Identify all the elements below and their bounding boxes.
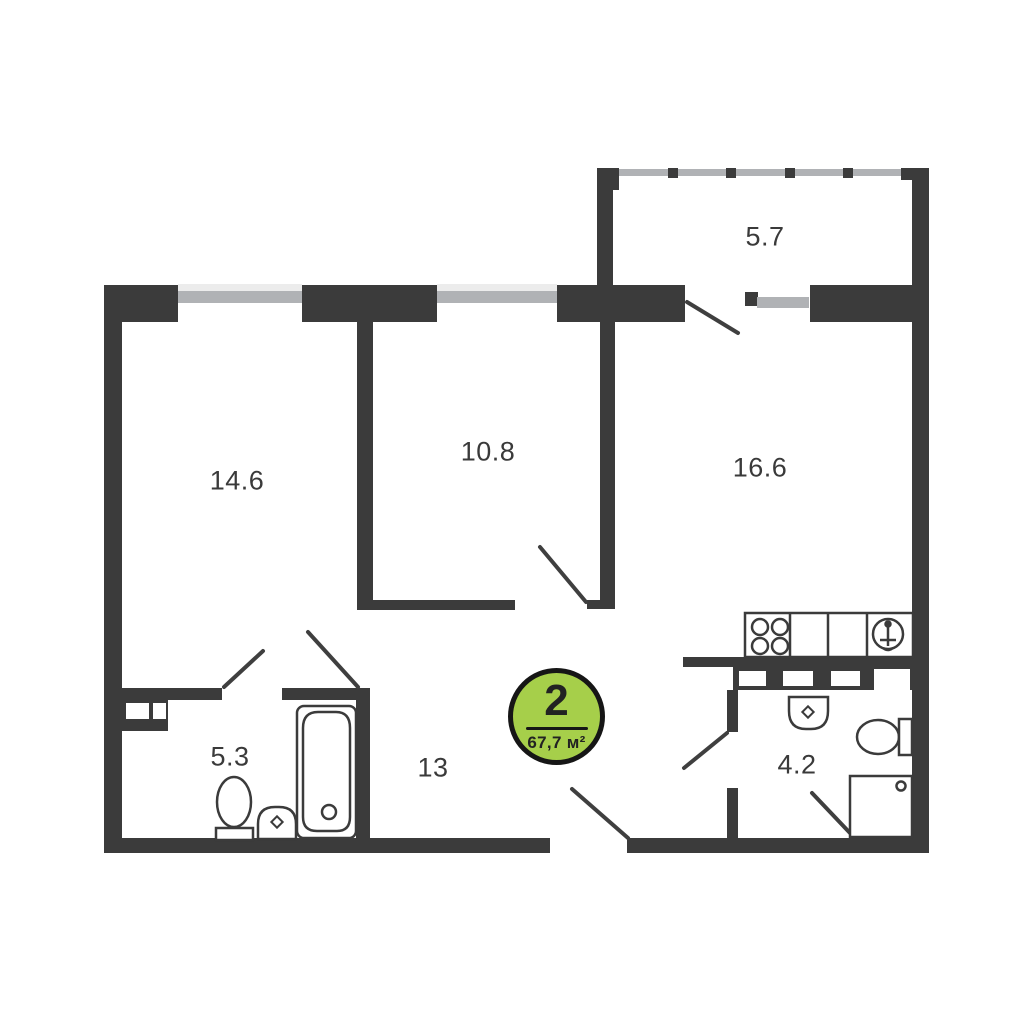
wc-left-wall-lower bbox=[727, 788, 738, 838]
outer-wall-left bbox=[104, 285, 122, 853]
apartment-type-badge: 2 67,7 м² bbox=[508, 668, 605, 765]
shower-icon bbox=[850, 776, 912, 837]
balcony-glazing bbox=[613, 169, 912, 176]
glazing-post bbox=[597, 168, 619, 190]
bathroom-top-wall-left bbox=[120, 688, 222, 700]
glazing-post bbox=[668, 168, 678, 178]
wc-door-leaf bbox=[684, 733, 727, 768]
glazing-post bbox=[785, 168, 795, 178]
top-wall-block-b bbox=[302, 285, 437, 322]
shower-door-leaf bbox=[812, 793, 850, 833]
balcony-door-stop bbox=[745, 292, 758, 306]
floor-plan: 14.6 10.8 16.6 5.7 5.3 13 4.2 2 67,7 м² bbox=[0, 0, 1024, 1024]
toilet-icon bbox=[216, 777, 253, 840]
room-label-balcony: 5.7 bbox=[745, 222, 784, 253]
window-bedroom-frame bbox=[437, 284, 557, 292]
duct-vent-opening bbox=[874, 669, 910, 690]
window-living-glass bbox=[178, 291, 302, 303]
bedroom-bottom-wall bbox=[357, 600, 515, 610]
kitchen-partition-wall bbox=[683, 657, 912, 667]
kitchen-fixtures bbox=[745, 613, 913, 657]
bathroom-right-wall bbox=[356, 688, 370, 838]
floor-plan-drawing bbox=[0, 0, 1024, 1024]
room-label-hallway: 13 bbox=[417, 753, 448, 784]
balcony-door-leaf bbox=[687, 302, 738, 333]
duct-vent-opening bbox=[783, 671, 813, 686]
bathtub-icon bbox=[297, 706, 356, 838]
washbasin-icon bbox=[789, 697, 828, 729]
glazing-post bbox=[901, 168, 929, 180]
room-label-wc: 4.2 bbox=[777, 750, 816, 781]
entrance-door-leaf bbox=[572, 789, 628, 838]
outer-wall-right bbox=[912, 168, 929, 853]
top-wall-block-c bbox=[557, 285, 685, 322]
top-wall-block-d bbox=[810, 285, 912, 322]
duct-vent-opening bbox=[739, 671, 766, 686]
outer-wall-bottom-left bbox=[104, 838, 550, 853]
rooms-count: 2 bbox=[544, 679, 568, 723]
bathroom-door-leaf bbox=[224, 651, 263, 687]
room-label-kitchen: 16.6 bbox=[733, 453, 788, 484]
outer-wall-bottom-right bbox=[627, 838, 929, 853]
partition-living-bedroom bbox=[357, 322, 373, 610]
window-bedroom-glass bbox=[437, 291, 557, 303]
glazing-post bbox=[843, 168, 853, 178]
wc-left-wall-upper bbox=[727, 690, 738, 732]
duct-vent-opening bbox=[126, 703, 149, 719]
living-door-leaf bbox=[308, 632, 358, 687]
partition-bedroom-kitchen bbox=[600, 322, 615, 608]
washbasin-icon bbox=[258, 807, 296, 839]
room-label-bathroom: 5.3 bbox=[210, 742, 249, 773]
duct-vent-opening bbox=[831, 671, 860, 686]
duct-vent-opening bbox=[153, 703, 166, 719]
bedroom-door-leaf bbox=[540, 547, 586, 602]
window-living-frame bbox=[178, 284, 302, 292]
room-label-bedroom: 10.8 bbox=[461, 437, 516, 468]
kitchen-sink-icon bbox=[873, 619, 903, 650]
bathroom-fixtures bbox=[216, 706, 356, 840]
toilet-icon bbox=[857, 719, 912, 755]
window-kitchen-glass bbox=[757, 297, 809, 308]
total-area: 67,7 м² bbox=[527, 733, 585, 753]
top-wall-block-a bbox=[104, 285, 178, 322]
glazing-post bbox=[726, 168, 736, 178]
room-label-living: 14.6 bbox=[210, 466, 265, 497]
badge-divider bbox=[526, 727, 588, 730]
